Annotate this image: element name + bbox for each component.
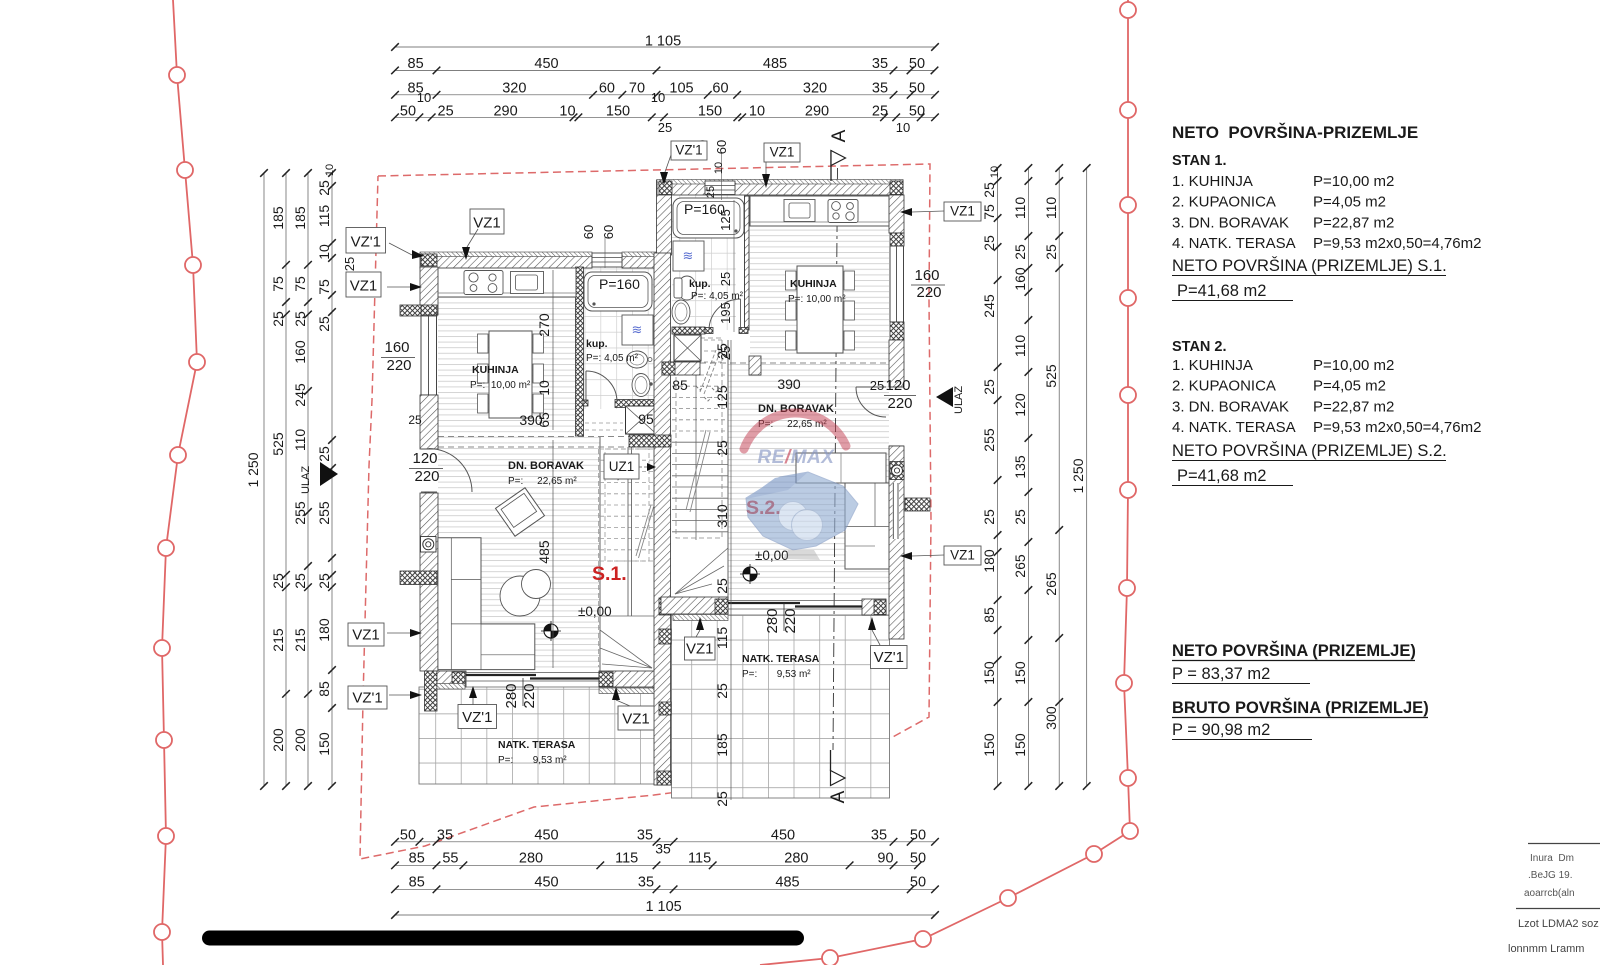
svg-text:VZ1: VZ1 xyxy=(350,278,378,295)
svg-text:200: 200 xyxy=(292,728,308,752)
svg-text:290: 290 xyxy=(493,103,517,119)
svg-text:VZ1: VZ1 xyxy=(770,145,795,160)
svg-text:450: 450 xyxy=(534,875,558,891)
svg-text:10: 10 xyxy=(896,120,910,135)
svg-text:185: 185 xyxy=(292,206,308,230)
svg-text:115: 115 xyxy=(688,851,711,867)
svg-text:150: 150 xyxy=(1012,661,1028,685)
svg-text:485: 485 xyxy=(763,56,787,72)
svg-text:25: 25 xyxy=(718,346,733,360)
svg-text:P=9,53 m2x0,50=4,76m2: P=9,53 m2x0,50=4,76m2 xyxy=(1313,419,1481,436)
svg-text:25: 25 xyxy=(1012,244,1028,260)
svg-text:STAN 1.: STAN 1. xyxy=(1172,153,1227,169)
svg-text:60: 60 xyxy=(714,140,729,154)
svg-text:160: 160 xyxy=(914,267,939,284)
svg-text:KUHINJA: KUHINJA xyxy=(472,364,519,376)
svg-text:450: 450 xyxy=(771,827,795,843)
svg-text:115: 115 xyxy=(316,205,332,228)
svg-text:25: 25 xyxy=(270,311,286,327)
svg-text:KUHINJA: KUHINJA xyxy=(790,278,837,290)
svg-text:85: 85 xyxy=(409,851,425,867)
svg-text:150: 150 xyxy=(1012,733,1028,757)
svg-text:3. DN. BORAVAK: 3. DN. BORAVAK xyxy=(1172,398,1289,415)
svg-text:P=10,00 m2: P=10,00 m2 xyxy=(1313,173,1394,190)
svg-text:70: 70 xyxy=(629,80,645,96)
svg-text:25: 25 xyxy=(872,103,888,119)
svg-text:1 105: 1 105 xyxy=(645,899,681,915)
svg-text:25: 25 xyxy=(718,272,733,286)
svg-text:50: 50 xyxy=(910,827,926,843)
svg-text:245: 245 xyxy=(981,294,997,318)
svg-text:A: A xyxy=(828,790,849,803)
svg-text:55: 55 xyxy=(442,851,458,867)
svg-text:85: 85 xyxy=(409,875,425,891)
svg-text:ULAZ: ULAZ xyxy=(300,466,312,494)
svg-text:≋: ≋ xyxy=(683,248,694,263)
svg-text:NETO POVRŠINA (PRIZEMLJE) S.1.: NETO POVRŠINA (PRIZEMLJE) S.1. xyxy=(1172,256,1447,275)
svg-text:185: 185 xyxy=(714,733,730,757)
svg-text:485: 485 xyxy=(775,875,799,891)
svg-text:115: 115 xyxy=(714,627,730,650)
svg-text:1. KUHINJA: 1. KUHINJA xyxy=(1172,173,1253,190)
svg-text:25: 25 xyxy=(981,509,997,525)
svg-text:1 250: 1 250 xyxy=(245,452,261,487)
svg-text:lonnmm Lramm: lonnmm Lramm xyxy=(1508,943,1584,955)
svg-text:110: 110 xyxy=(292,429,308,452)
svg-text:VZ1: VZ1 xyxy=(473,215,501,232)
svg-text:P=: 10,00 m²: P=: 10,00 m² xyxy=(788,294,846,305)
svg-text:320: 320 xyxy=(803,80,827,96)
svg-text:10: 10 xyxy=(651,90,665,105)
svg-text:P=: 4,05 m²: P=: 4,05 m² xyxy=(691,291,744,302)
svg-text:2. KUPAONICA: 2. KUPAONICA xyxy=(1172,194,1276,211)
svg-text:aoarrcb(aln: aoarrcb(aln xyxy=(1524,888,1575,899)
svg-text:220: 220 xyxy=(386,357,411,374)
svg-text:1. KUHINJA: 1. KUHINJA xyxy=(1172,357,1253,374)
svg-text:P=: 9,53 m²: P=: 9,53 m² xyxy=(742,669,811,680)
svg-text:120: 120 xyxy=(412,450,437,467)
svg-text:35: 35 xyxy=(872,56,888,72)
svg-text:DN. BORAVAK: DN. BORAVAK xyxy=(508,460,584,472)
svg-text:P=160: P=160 xyxy=(599,276,640,292)
svg-text:4. NATK. TERASA: 4. NATK. TERASA xyxy=(1172,235,1296,252)
svg-text:255: 255 xyxy=(981,428,997,452)
svg-text:STAN 2.: STAN 2. xyxy=(1172,339,1227,355)
svg-text:195: 195 xyxy=(718,302,733,324)
svg-text:90: 90 xyxy=(877,851,893,867)
svg-text:25: 25 xyxy=(714,791,730,807)
svg-text:215: 215 xyxy=(270,628,286,652)
svg-text:25: 25 xyxy=(705,186,717,198)
svg-text:P=10,00 m2: P=10,00 m2 xyxy=(1313,357,1394,374)
svg-text:35: 35 xyxy=(437,827,453,843)
svg-text:75: 75 xyxy=(316,279,332,295)
svg-text:10: 10 xyxy=(559,103,575,119)
svg-text:150: 150 xyxy=(981,661,997,685)
svg-text:.BeJG 19.: .BeJG 19. xyxy=(1528,870,1572,881)
svg-text:25: 25 xyxy=(1012,509,1028,525)
svg-text:150: 150 xyxy=(981,733,997,757)
svg-text:35: 35 xyxy=(638,875,654,891)
svg-text:110: 110 xyxy=(1012,335,1028,358)
svg-text:P=41,68 m2: P=41,68 m2 xyxy=(1177,282,1266,300)
svg-text:50: 50 xyxy=(400,103,416,119)
svg-text:280: 280 xyxy=(784,851,808,867)
svg-text:200: 200 xyxy=(270,728,286,752)
svg-text:265: 265 xyxy=(1043,572,1059,596)
svg-text:P=4,05 m2: P=4,05 m2 xyxy=(1313,194,1386,211)
svg-text:±0,00: ±0,00 xyxy=(755,548,789,563)
svg-text:25: 25 xyxy=(316,316,332,332)
svg-text:135: 135 xyxy=(1012,455,1028,479)
svg-text:25: 25 xyxy=(714,440,730,456)
svg-text:50: 50 xyxy=(909,56,925,72)
svg-text:UZ1: UZ1 xyxy=(609,459,635,474)
svg-text:485: 485 xyxy=(536,540,552,564)
svg-text:25: 25 xyxy=(316,180,332,196)
svg-text:280: 280 xyxy=(503,683,520,708)
svg-text:P=41,68 m2: P=41,68 m2 xyxy=(1177,467,1266,485)
svg-text:450: 450 xyxy=(534,56,558,72)
svg-text:220: 220 xyxy=(782,608,799,633)
svg-text:P=: 10,00 m²: P=: 10,00 m² xyxy=(470,380,531,391)
svg-text:50: 50 xyxy=(400,827,416,843)
svg-text:85: 85 xyxy=(981,607,997,623)
svg-text:VZ1: VZ1 xyxy=(686,641,714,658)
svg-text:105: 105 xyxy=(669,80,693,96)
svg-text:125: 125 xyxy=(714,385,730,409)
svg-text:25: 25 xyxy=(316,446,332,462)
svg-text:10: 10 xyxy=(536,380,552,396)
svg-text:85: 85 xyxy=(316,681,332,697)
svg-text:NETO POVRŠINA (PRIZEMLJE) S.2.: NETO POVRŠINA (PRIZEMLJE) S.2. xyxy=(1172,441,1447,460)
svg-text:ULAZ: ULAZ xyxy=(953,386,965,414)
svg-text:50: 50 xyxy=(910,851,926,867)
svg-text:525: 525 xyxy=(270,432,286,456)
svg-text:P=: 4,05 m²: P=: 4,05 m² xyxy=(586,353,639,364)
svg-text:VZ'1: VZ'1 xyxy=(874,649,904,666)
svg-text:25: 25 xyxy=(981,182,997,198)
svg-text:BRUTO POVRŠINA (PRIZEMLJE): BRUTO POVRŠINA (PRIZEMLJE) xyxy=(1172,698,1429,717)
svg-text:75: 75 xyxy=(270,276,286,292)
svg-text:290: 290 xyxy=(805,103,829,119)
svg-text:10: 10 xyxy=(713,162,725,174)
svg-text:115: 115 xyxy=(615,851,638,867)
svg-text:110: 110 xyxy=(1012,197,1028,220)
svg-text:10: 10 xyxy=(324,164,336,176)
svg-text:35: 35 xyxy=(655,841,671,857)
svg-text:25: 25 xyxy=(292,311,308,327)
svg-text:280: 280 xyxy=(519,851,543,867)
svg-text:150: 150 xyxy=(316,732,332,756)
svg-text:150: 150 xyxy=(698,103,722,119)
svg-text:220: 220 xyxy=(414,468,439,485)
svg-text:220: 220 xyxy=(521,683,538,708)
svg-text:NETO POVRŠINA-PRIZEMLJE: NETO POVRŠINA-PRIZEMLJE xyxy=(1172,123,1418,142)
svg-text:160: 160 xyxy=(1012,267,1028,291)
svg-text:390: 390 xyxy=(519,412,543,428)
svg-text:35: 35 xyxy=(637,827,653,843)
svg-text:125: 125 xyxy=(718,209,733,231)
svg-text:220: 220 xyxy=(916,284,941,301)
svg-text:255: 255 xyxy=(316,501,332,525)
svg-text:25: 25 xyxy=(1043,244,1059,260)
svg-text:P=: 9,53 m²: P=: 9,53 m² xyxy=(498,755,567,766)
svg-text:kup.: kup. xyxy=(689,278,711,290)
svg-text:VZ1: VZ1 xyxy=(352,627,380,644)
svg-text:VZ1: VZ1 xyxy=(950,204,975,219)
svg-text:160: 160 xyxy=(292,340,308,364)
svg-text:25: 25 xyxy=(870,378,884,393)
svg-text:NATK. TERASA: NATK. TERASA xyxy=(742,653,820,665)
svg-text:25: 25 xyxy=(270,573,286,589)
svg-text:Lzot LDMA2 soz: Lzot LDMA2 soz xyxy=(1518,918,1599,930)
svg-text:≋: ≋ xyxy=(632,322,643,337)
svg-text:110: 110 xyxy=(1043,197,1059,220)
svg-text:±0,00: ±0,00 xyxy=(578,604,612,619)
svg-text:2. KUPAONICA: 2. KUPAONICA xyxy=(1172,378,1276,395)
svg-text:270: 270 xyxy=(536,313,552,337)
svg-text:75: 75 xyxy=(292,276,308,292)
svg-text:P=22,87 m2: P=22,87 m2 xyxy=(1313,398,1394,415)
svg-text:75: 75 xyxy=(981,204,997,220)
svg-text:25: 25 xyxy=(981,379,997,395)
svg-text:95: 95 xyxy=(638,411,654,427)
svg-text:60: 60 xyxy=(712,80,728,96)
svg-text:P = 83,37 m2: P = 83,37 m2 xyxy=(1172,665,1270,683)
svg-text:255: 255 xyxy=(292,501,308,525)
svg-text:300: 300 xyxy=(1043,706,1059,730)
svg-text:4. NATK. TERASA: 4. NATK. TERASA xyxy=(1172,419,1296,436)
svg-text:120: 120 xyxy=(1012,393,1028,417)
svg-text:P=9,53 m2x0,50=4,76m2: P=9,53 m2x0,50=4,76m2 xyxy=(1313,235,1481,252)
svg-text:185: 185 xyxy=(270,206,286,230)
svg-text:NATK. TERASA: NATK. TERASA xyxy=(498,739,576,751)
svg-text:VZ'1: VZ'1 xyxy=(351,234,381,251)
svg-text:310: 310 xyxy=(714,504,730,528)
svg-text:525: 525 xyxy=(1043,364,1059,388)
svg-text:VZ'1: VZ'1 xyxy=(462,709,492,726)
svg-text:150: 150 xyxy=(606,103,630,119)
svg-text:50: 50 xyxy=(909,103,925,119)
svg-text:60: 60 xyxy=(599,80,615,96)
svg-text:245: 245 xyxy=(292,383,308,407)
svg-text:180: 180 xyxy=(316,618,332,642)
svg-text:S.1.: S.1. xyxy=(592,563,627,585)
svg-text:25: 25 xyxy=(981,235,997,251)
svg-text:10: 10 xyxy=(417,90,431,105)
svg-text:10: 10 xyxy=(316,244,332,260)
svg-text:120: 120 xyxy=(885,377,910,394)
svg-text:P=: 22,65 m²: P=: 22,65 m² xyxy=(508,476,577,487)
svg-text:25: 25 xyxy=(316,573,332,589)
svg-text:25: 25 xyxy=(714,683,730,699)
svg-text:25: 25 xyxy=(408,413,422,427)
svg-text:50: 50 xyxy=(910,875,926,891)
svg-text:10: 10 xyxy=(749,103,765,119)
svg-text:180: 180 xyxy=(981,549,997,573)
svg-text:35: 35 xyxy=(871,827,887,843)
svg-text:10: 10 xyxy=(989,166,1001,178)
svg-text:35: 35 xyxy=(872,80,888,96)
svg-text:215: 215 xyxy=(292,628,308,652)
svg-text:NETO POVRŠINA (PRIZEMLJE): NETO POVRŠINA (PRIZEMLJE) xyxy=(1172,641,1416,660)
svg-text:25: 25 xyxy=(658,120,672,135)
svg-text:85: 85 xyxy=(408,56,424,72)
svg-text:220: 220 xyxy=(887,395,912,412)
svg-text:A: A xyxy=(829,129,850,142)
svg-text:50: 50 xyxy=(909,80,925,96)
svg-text:P=4,05 m2: P=4,05 m2 xyxy=(1313,378,1386,395)
svg-text:60: 60 xyxy=(601,225,616,239)
svg-text:3. DN. BORAVAK: 3. DN. BORAVAK xyxy=(1172,214,1289,231)
svg-text:280: 280 xyxy=(764,608,781,633)
svg-text:VZ'1: VZ'1 xyxy=(352,690,382,707)
svg-text:85: 85 xyxy=(672,377,688,393)
svg-text:1 250: 1 250 xyxy=(1070,458,1086,493)
svg-text:320: 320 xyxy=(502,80,526,96)
svg-text:VZ'1: VZ'1 xyxy=(675,143,702,158)
svg-text:RE/MAX: RE/MAX xyxy=(758,447,836,468)
svg-text:P=22,87 m2: P=22,87 m2 xyxy=(1313,214,1394,231)
svg-text:60: 60 xyxy=(581,225,596,239)
svg-text:160: 160 xyxy=(384,339,409,356)
svg-text:VZ1: VZ1 xyxy=(950,548,975,563)
svg-text:VZ1: VZ1 xyxy=(622,711,650,728)
svg-text:25: 25 xyxy=(438,103,454,119)
svg-text:25: 25 xyxy=(292,573,308,589)
svg-text:265: 265 xyxy=(1012,554,1028,578)
svg-text:P = 90,98 m2: P = 90,98 m2 xyxy=(1172,721,1270,739)
svg-text:25: 25 xyxy=(714,578,730,594)
svg-text:25: 25 xyxy=(342,257,357,271)
svg-text:Inura Dm: Inura Dm xyxy=(1530,853,1574,864)
svg-text:1 105: 1 105 xyxy=(645,34,681,50)
svg-text:390: 390 xyxy=(777,376,801,392)
svg-text:450: 450 xyxy=(534,827,558,843)
svg-text:kup.: kup. xyxy=(586,338,608,350)
